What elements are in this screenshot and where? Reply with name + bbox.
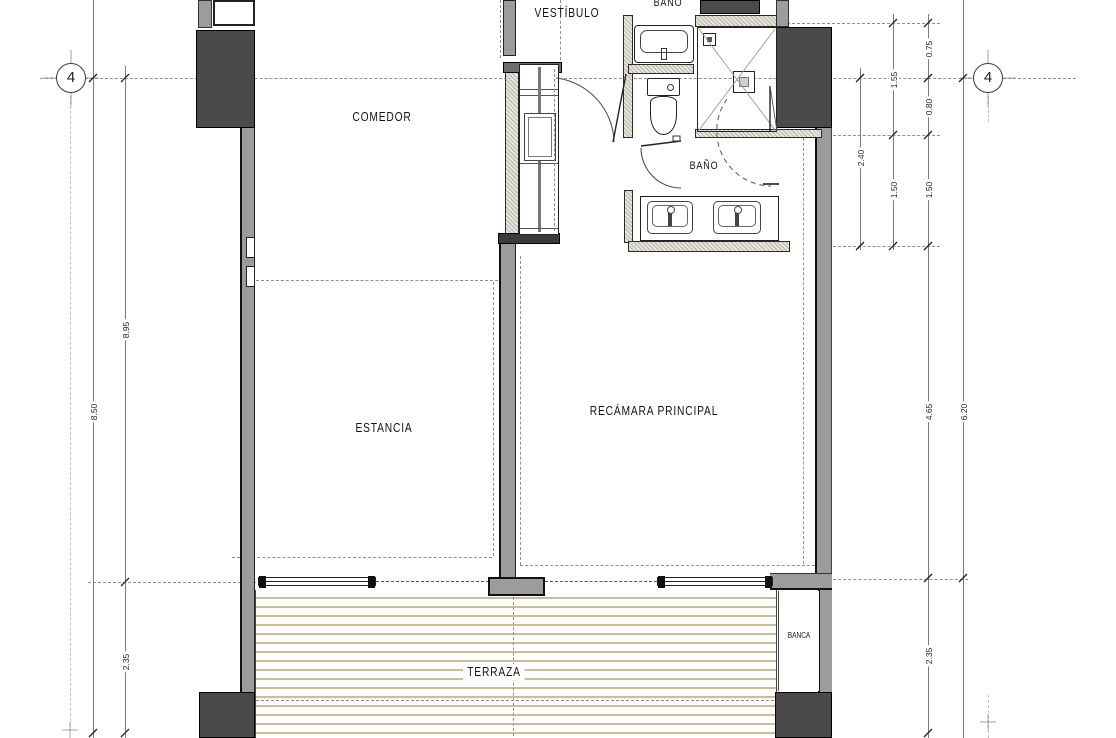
label-terraza: TERRAZA [463,664,525,680]
door-leaf-vestibulo [613,74,626,142]
door-leaf-bano [641,141,681,146]
dimension-ticks [89,19,967,737]
door-hinge-bano [673,136,680,141]
dim-bath-lower-b: 1.50 [924,180,934,201]
dim-left-total: 8.50 [89,402,99,423]
label-bano-top: BAÑO [654,0,683,9]
grid-bubble-right: 4 [973,63,1003,93]
survey-crosses [62,714,996,738]
floor-plan: VESTÍBULO BAÑO COMEDOR BAÑO ESTANCIA REC… [0,0,1116,738]
dim-bath-lower-a: 1.50 [889,180,899,201]
dim-bath-total: 2.40 [856,148,866,169]
dim-right-terrace: 2.35 [924,646,934,667]
dim-left-terrace: 2.35 [121,652,131,673]
label-banca: BANCA [788,631,811,640]
shower-door-swing [717,99,771,186]
annotation-layer [0,0,1116,738]
dim-left-upper: 8.95 [121,320,131,341]
label-bano: BAÑO [690,160,719,172]
door-arc-bano [641,148,681,188]
dim-right-total: 6.20 [959,402,969,423]
dim-top-b: 0.80 [924,97,934,118]
dim-top-a: 0.75 [924,39,934,60]
label-comedor: COMEDOR [352,110,411,124]
dim-bath-upper: 1.55 [889,70,899,91]
label-recamara: RECÁMARA PRINCIPAL [590,404,718,418]
grid-bubble-left: 4 [56,63,86,93]
label-estancia: ESTANCIA [355,421,412,435]
dim-bedroom: 4.65 [924,402,934,423]
door-arc-vestibulo [556,78,614,142]
label-vestibulo: VESTÍBULO [535,6,600,20]
